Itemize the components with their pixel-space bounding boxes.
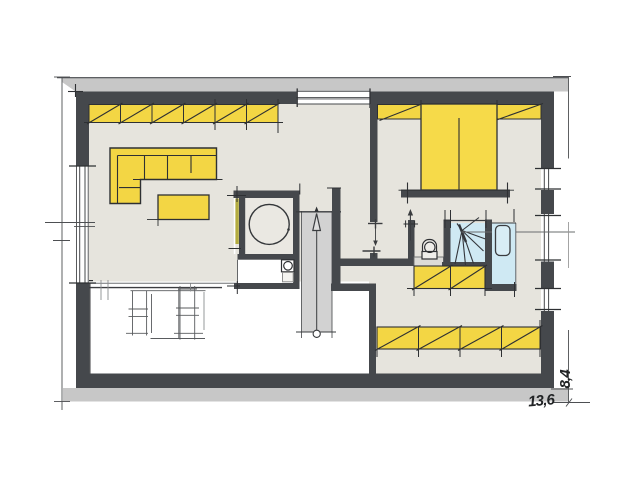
svg-text:8,4: 8,4 [557, 369, 574, 389]
svg-text:13,6: 13,6 [527, 391, 556, 410]
